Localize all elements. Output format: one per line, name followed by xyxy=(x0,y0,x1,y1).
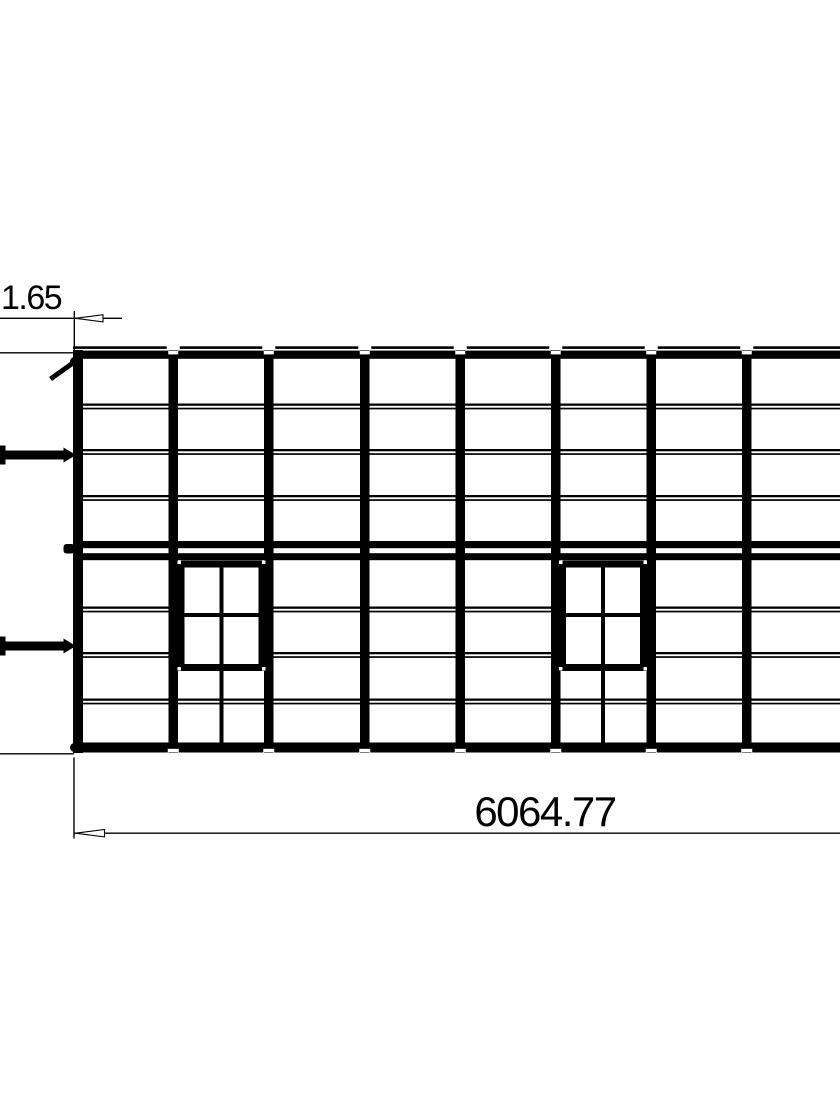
post xyxy=(360,350,370,753)
under-window-mullion xyxy=(220,671,224,743)
elevation-drawing-canvas: 1.65 6064.77 xyxy=(0,0,840,1120)
post xyxy=(456,350,466,753)
bottom-corner-fitting xyxy=(70,743,79,752)
mid-rail-end-fitting xyxy=(64,544,75,554)
dimension-label-top-left: 1.65 xyxy=(1,279,62,317)
elevation-drawing-page: 1.65 6064.77 xyxy=(0,0,840,1120)
bar-shaft xyxy=(0,642,64,651)
dimension-label-overall-width: 6064.77 xyxy=(474,788,615,835)
bar-shaft xyxy=(0,451,64,460)
post xyxy=(551,350,561,753)
post xyxy=(169,350,179,753)
post xyxy=(73,350,83,753)
post xyxy=(647,350,657,753)
window-horizontal-mullion xyxy=(185,613,259,617)
post xyxy=(264,350,274,753)
under-window-mullion xyxy=(601,671,605,743)
post xyxy=(742,350,752,753)
window-horizontal-mullion xyxy=(566,613,640,617)
